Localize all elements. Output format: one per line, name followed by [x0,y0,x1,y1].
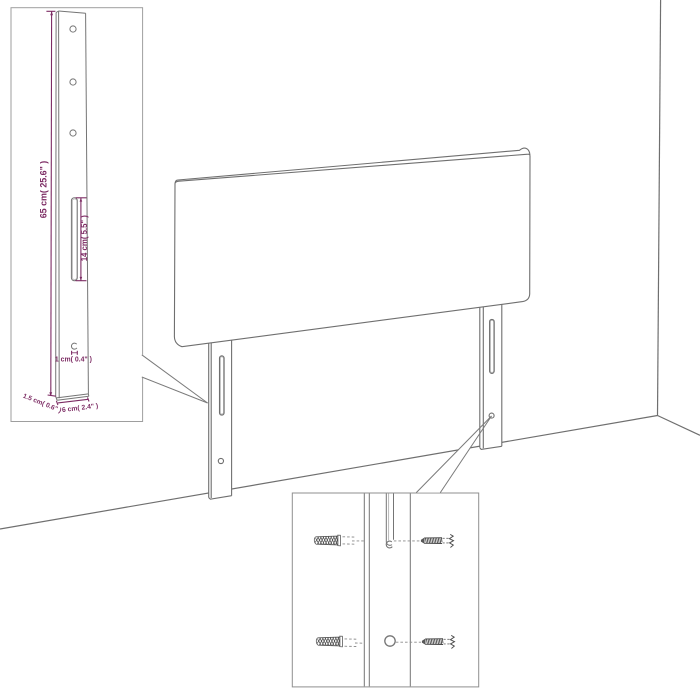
svg-text:1 cm( 0.4" ): 1 cm( 0.4" ) [55,356,92,363]
svg-text:14 cm( 5.5" ): 14 cm( 5.5" ) [80,215,89,262]
svg-text:65 cm( 25.6" ): 65 cm( 25.6" ) [39,161,49,219]
